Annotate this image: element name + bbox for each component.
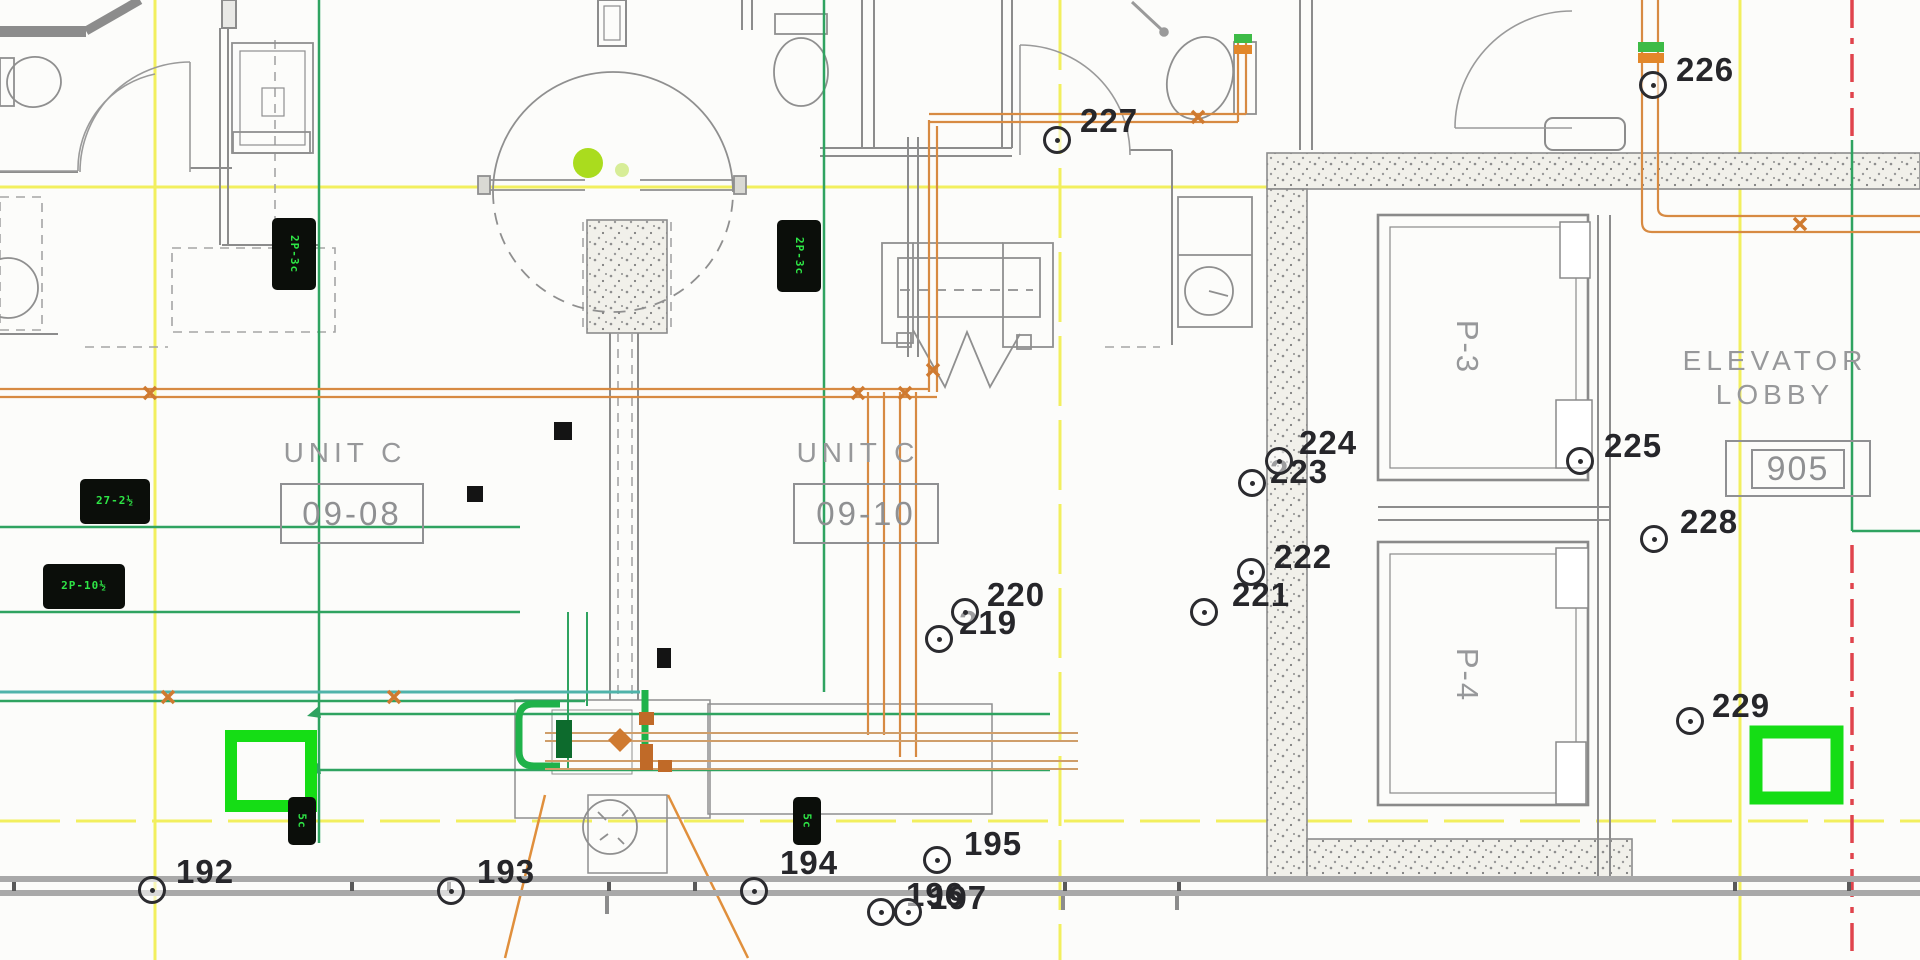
marker-dot — [937, 637, 942, 642]
unit-label-left: UNIT C — [270, 437, 420, 469]
equipment-tag-text: 2P-3c — [288, 235, 300, 273]
elevator-p4-label: P-4 — [1433, 640, 1503, 710]
marker-circle-197 — [894, 898, 922, 926]
marker-dot — [879, 910, 884, 915]
marker-dot — [449, 889, 454, 894]
stub-up-square-2 — [657, 648, 671, 668]
stub-up-square-0 — [554, 422, 572, 440]
equipment-tag-0: 2P-3c — [272, 218, 316, 290]
marker-dot — [1249, 570, 1254, 575]
marker-label-227: 227 — [1080, 104, 1138, 137]
marker-label-220: 220 — [987, 578, 1045, 611]
exterior-wall-top-left — [0, 0, 140, 37]
marker-circle-221 — [1190, 598, 1218, 626]
conduits-orange — [0, 0, 1920, 757]
unit-number-left: 09-08 — [280, 483, 424, 544]
marker-dot — [1277, 459, 1282, 464]
marker-circle-193 — [437, 877, 465, 905]
marker-circle-192 — [138, 876, 166, 904]
marker-label-193: 193 — [477, 855, 535, 888]
floor-plan-canvas: UNIT C 09-08 UNIT C 09-10 ELEVATOR LOBBY… — [0, 0, 1920, 960]
marker-circle-195 — [923, 846, 951, 874]
marker-circle-228 — [1640, 525, 1668, 553]
marker-circle-223 — [1238, 469, 1266, 497]
marker-dot — [906, 910, 911, 915]
equipment-tag-3: 2P-10½ — [43, 564, 125, 609]
marker-label-197: 197 — [929, 881, 987, 914]
marker-dot — [1652, 537, 1657, 542]
marker-dot — [150, 888, 155, 893]
marker-circle-224 — [1265, 447, 1293, 475]
marker-dot — [935, 858, 940, 863]
marker-circle-226 — [1639, 71, 1667, 99]
equipment-tag-5: 5c — [793, 797, 821, 845]
equipment-tag-1: 2P-3c — [777, 220, 821, 292]
marker-dot — [1651, 83, 1656, 88]
marker-dot — [1250, 481, 1255, 486]
equipment-tag-2: 27-2½ — [80, 479, 150, 524]
marker-label-224: 224 — [1299, 426, 1357, 459]
marker-circle-219 — [925, 625, 953, 653]
equipment-tag-text: 2P-3c — [793, 237, 805, 275]
marker-circle-229 — [1676, 707, 1704, 735]
marker-circle-196 — [867, 898, 895, 926]
marker-dot — [752, 889, 757, 894]
elevator-lobby-label-line1: ELEVATOR — [1680, 345, 1870, 377]
marker-dot — [1578, 459, 1583, 464]
marker-label-192: 192 — [176, 855, 234, 888]
elevator-lobby-room-number-box: 905 — [1725, 440, 1871, 497]
fixture-dot-chartreuse — [573, 148, 629, 178]
marker-dot — [963, 610, 968, 615]
marker-dot — [1688, 719, 1693, 724]
marker-label-195: 195 — [964, 827, 1022, 860]
partition-walls-dashed — [0, 40, 1160, 700]
equipment-tag-text: 5c — [801, 813, 813, 828]
marker-circle-222 — [1237, 558, 1265, 586]
unit-label-right: UNIT C — [783, 437, 933, 469]
equipment-tag-text: 2P-10½ — [61, 580, 107, 592]
marker-circle-225 — [1566, 447, 1594, 475]
conduit-stub-ticks — [1234, 34, 1664, 63]
marker-dot — [1202, 610, 1207, 615]
marker-label-194: 194 — [780, 846, 838, 879]
marker-label-226: 226 — [1676, 53, 1734, 86]
marker-circle-220 — [951, 598, 979, 626]
equipment-tag-4: 5c — [288, 797, 316, 845]
marker-dot — [1055, 138, 1060, 143]
elevator-lobby-label-line2: LOBBY — [1680, 379, 1870, 411]
marker-label-229: 229 — [1712, 689, 1770, 722]
stub-up-square-1 — [467, 486, 483, 502]
equipment-tag-text: 27-2½ — [96, 495, 134, 507]
elevator-shafts — [1378, 215, 1592, 805]
marker-circle-227 — [1043, 126, 1071, 154]
marker-label-228: 228 — [1680, 505, 1738, 538]
marker-label-221: 221 — [1232, 578, 1290, 611]
elevator-lobby-room-number: 905 — [1751, 449, 1846, 489]
marker-circle-194 — [740, 877, 768, 905]
unit-number-right: 09-10 — [793, 483, 939, 544]
marker-label-222: 222 — [1274, 540, 1332, 573]
elevator-p3-label: P-3 — [1433, 312, 1503, 382]
conduits-green — [0, 0, 1920, 843]
marker-label-225: 225 — [1604, 429, 1662, 462]
equipment-tag-text: 5c — [296, 813, 308, 828]
